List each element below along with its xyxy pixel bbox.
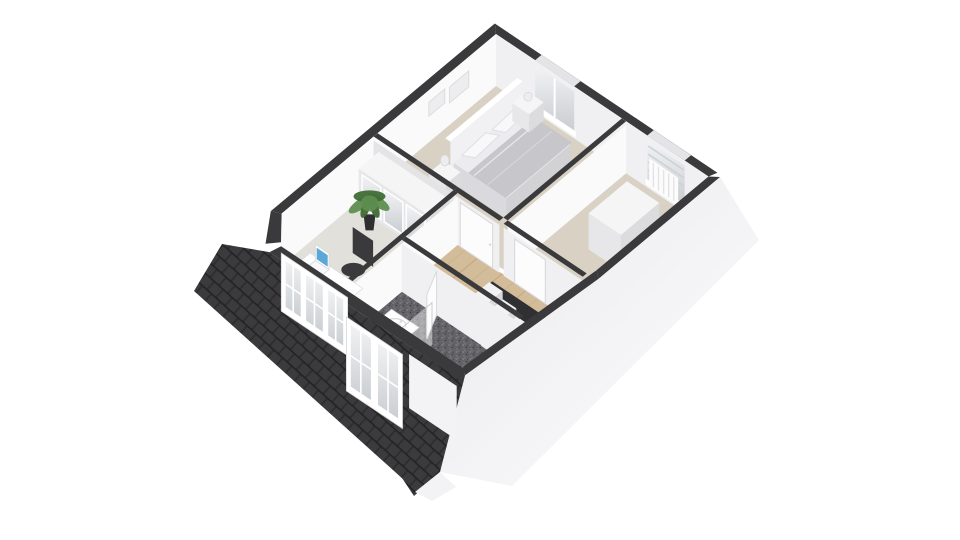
table-lamp-right bbox=[524, 92, 532, 101]
floor-plan-3d-render bbox=[0, 0, 960, 540]
plant-pot bbox=[364, 214, 376, 230]
floor-plan-canvas bbox=[0, 0, 960, 540]
table-lamp-left bbox=[441, 155, 449, 166]
plant-foliage bbox=[361, 195, 379, 211]
faucet bbox=[400, 320, 403, 323]
chamfer-wall-top-edge bbox=[266, 211, 282, 244]
door-handle bbox=[489, 243, 491, 245]
